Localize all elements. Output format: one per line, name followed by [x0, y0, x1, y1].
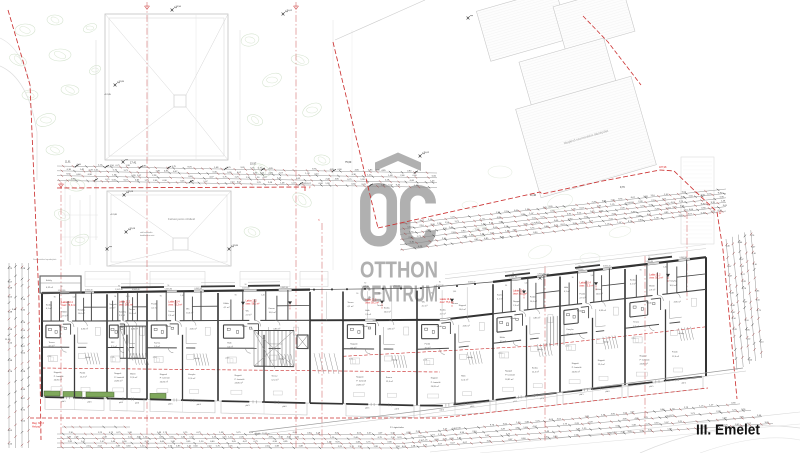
svg-text:Lakás 11.2: Lakás 11.2 — [365, 300, 377, 302]
svg-text:1,50: 1,50 — [732, 318, 737, 320]
svg-text:0,90/2,40: 0,90/2,40 — [85, 289, 93, 291]
svg-text:Konyha: Konyha — [188, 374, 196, 376]
svg-text:2,28: 2,28 — [68, 441, 73, 443]
svg-text:0,90: 0,90 — [720, 197, 725, 199]
svg-text:12,4 m²: 12,4 m² — [672, 355, 679, 358]
svg-text:össz: 75,3 m²: össz: 75,3 m² — [168, 303, 182, 306]
svg-text:4,85: 4,85 — [176, 446, 181, 448]
svg-text:4,1 m²: 4,1 m² — [151, 306, 157, 309]
svg-text:3,05: 3,05 — [723, 205, 728, 207]
svg-text:pld 5: pld 5 — [62, 401, 66, 403]
svg-text:1,50/1,80: 1,50/1,80 — [361, 286, 369, 288]
svg-text:90: 90 — [54, 297, 56, 299]
svg-text:+12,09: +12,09 — [126, 191, 134, 193]
svg-text:5,75: 5,75 — [223, 177, 228, 179]
svg-text:Nappali: Nappali — [431, 378, 439, 380]
svg-text:P: laminált: P: laminált — [114, 376, 124, 379]
svg-text:Fürdő: Fürdő — [672, 351, 678, 354]
svg-text:3,05: 3,05 — [296, 178, 301, 180]
svg-text:24,85 m²: 24,85 m² — [572, 370, 581, 373]
svg-text:Fürdő: Fürdő — [80, 372, 86, 375]
svg-text:Fürdő: Fürdő — [437, 325, 443, 328]
svg-text:erkély: erkély — [603, 341, 610, 344]
svg-text:2,9 m²: 2,9 m² — [168, 314, 174, 317]
svg-text:Előtér: Előtér — [649, 284, 655, 287]
svg-text:Nappali: Nappali — [459, 305, 467, 307]
svg-text:0,90: 0,90 — [388, 441, 393, 443]
svg-text:0,90/2,40: 0,90/2,40 — [468, 281, 476, 283]
svg-text:össz: 75,3 m²: össz: 75,3 m² — [580, 285, 594, 288]
svg-text:1,38: 1,38 — [275, 446, 280, 448]
svg-text:12,4 m²: 12,4 m² — [80, 375, 87, 378]
svg-text:Lakás 10.4: Lakás 10.4 — [62, 302, 74, 304]
svg-text:P: laminált: P: laminált — [640, 359, 650, 362]
svg-text:Szomszédos kapubejtáró: Szomszédos kapubejtáró — [33, 258, 57, 261]
svg-text:90: 90 — [167, 285, 169, 287]
svg-text:2,28: 2,28 — [21, 268, 26, 270]
svg-text:2,28: 2,28 — [326, 178, 331, 180]
svg-text:Fürdő: Fürdő — [362, 325, 368, 328]
svg-text:10,6 m²: 10,6 m² — [129, 312, 136, 315]
svg-text:+12,85: +12,85 — [117, 81, 125, 83]
svg-text:P: laminált: P: laminált — [572, 366, 582, 369]
svg-text:10,6 m²: 10,6 m² — [384, 311, 391, 314]
svg-text:24,85 m²: 24,85 m² — [431, 385, 440, 388]
svg-text:Előtér: Előtér — [500, 336, 506, 339]
svg-text:17,41: 17,41 — [130, 162, 137, 165]
svg-text:2,46: 2,46 — [449, 227, 454, 229]
svg-text:0,90: 0,90 — [279, 437, 284, 439]
svg-text:pld 6: pld 6 — [540, 398, 544, 400]
svg-text:Fürdő: Fürdő — [580, 292, 586, 295]
svg-text:1,73: 1,73 — [189, 437, 194, 439]
svg-text:1,73: 1,73 — [417, 236, 422, 238]
svg-text:1,25: 1,25 — [605, 224, 610, 226]
svg-text:1,38: 1,38 — [8, 360, 13, 362]
svg-text:5,75: 5,75 — [216, 446, 221, 448]
svg-text:0,60: 0,60 — [76, 174, 81, 176]
svg-text:3,5 m²: 3,5 m² — [154, 345, 160, 348]
svg-text:10,6 m²: 10,6 m² — [269, 311, 276, 314]
svg-text:4,1 m²: 4,1 m² — [109, 307, 115, 310]
svg-text:10,6 m²: 10,6 m² — [670, 284, 677, 287]
svg-text:4,07: 4,07 — [8, 281, 13, 283]
svg-text:10,6 m²: 10,6 m² — [78, 312, 85, 315]
svg-text:0,30: 0,30 — [213, 172, 218, 174]
svg-text:erkély: erkély — [537, 348, 544, 351]
svg-text:6,07: 6,07 — [388, 184, 393, 186]
svg-text:1,07: 1,07 — [728, 266, 733, 268]
svg-text:+14,50: +14,50 — [174, 6, 182, 8]
svg-text:1,48: 1,48 — [280, 182, 285, 184]
svg-text:24,85 m²: 24,85 m² — [356, 384, 365, 387]
svg-text:Háló: Háló — [227, 343, 232, 345]
svg-text:0,60: 0,60 — [738, 242, 743, 244]
svg-text:pld 5: pld 5 — [365, 408, 369, 410]
svg-text:4,85 m²: 4,85 m² — [674, 301, 681, 304]
svg-text:1,48: 1,48 — [730, 293, 735, 295]
svg-text:4,85: 4,85 — [164, 171, 169, 173]
svg-text:Lakás 11.2: Lakás 11.2 — [246, 301, 258, 303]
svg-text:1,50/1,80: 1,50/1,80 — [165, 288, 173, 290]
svg-text:4,1 m²: 4,1 m² — [46, 307, 52, 310]
svg-text:1,25: 1,25 — [98, 432, 103, 434]
svg-text:1,48: 1,48 — [388, 175, 393, 177]
svg-text:1,10: 1,10 — [8, 444, 13, 446]
svg-text:6,07: 6,07 — [124, 180, 129, 182]
svg-text:4,85: 4,85 — [381, 170, 386, 172]
svg-text:1,07: 1,07 — [740, 266, 745, 268]
svg-text:Nappali: Nappali — [572, 363, 580, 365]
svg-text:2,28: 2,28 — [631, 211, 636, 213]
svg-text:Nappali: Nappali — [350, 343, 358, 345]
svg-text:24,85 m²: 24,85 m² — [235, 382, 244, 385]
svg-text:0,90: 0,90 — [273, 441, 278, 443]
svg-text:Szoba: Szoba — [46, 304, 53, 306]
svg-text:Konyha: Konyha — [567, 329, 575, 331]
svg-text:90: 90 — [356, 293, 358, 295]
svg-text:+15,02: +15,02 — [422, 152, 430, 154]
svg-text:+12,09: +12,09 — [128, 228, 136, 230]
svg-text:3,5 m²: 3,5 m² — [500, 340, 506, 343]
svg-text:0,30: 0,30 — [67, 169, 72, 171]
svg-text:0,60: 0,60 — [194, 446, 199, 448]
svg-text:0,30: 0,30 — [163, 180, 168, 182]
svg-text:0,75: 0,75 — [8, 268, 13, 270]
svg-text:4,85: 4,85 — [746, 330, 751, 332]
svg-text:P: laminált: P: laminált — [160, 377, 170, 380]
svg-text:erkély: erkély — [85, 356, 92, 359]
svg-text:Lakás 11.2: Lakás 11.2 — [119, 302, 131, 304]
svg-text:1,48: 1,48 — [8, 288, 13, 290]
svg-text:Lakás 10.4: Lakás 10.4 — [580, 283, 592, 285]
svg-text:0,90/2,40: 0,90/2,40 — [280, 287, 288, 289]
svg-text:1,48: 1,48 — [8, 312, 13, 314]
svg-text:Nappali: Nappali — [160, 374, 168, 376]
svg-text:Nappali: Nappali — [114, 373, 122, 375]
svg-text:erkély: erkély — [467, 356, 474, 359]
svg-text:10,6 m²: 10,6 m² — [530, 300, 537, 303]
svg-text:1,73: 1,73 — [480, 219, 485, 221]
svg-text:P: laminált: P: laminált — [431, 381, 441, 384]
svg-text:2,10: 2,10 — [69, 432, 74, 434]
svg-text:1,50: 1,50 — [21, 330, 26, 332]
svg-text:Fürdő: Fürdő — [242, 325, 248, 328]
svg-text:1,50: 1,50 — [21, 352, 26, 354]
svg-text:90: 90 — [572, 277, 574, 279]
svg-text:pld 6: pld 6 — [682, 382, 686, 384]
svg-text:P: Légtechnika: P: Légtechnika — [390, 426, 405, 429]
svg-text:0,60: 0,60 — [210, 441, 215, 443]
svg-text:lombkorona szint: lombkorona szint — [140, 234, 155, 237]
svg-text:+12,09: +12,09 — [110, 214, 118, 216]
svg-text:90: 90 — [245, 284, 247, 286]
svg-text:1,40: 1,40 — [126, 296, 130, 298]
svg-text:1,40: 1,40 — [73, 296, 77, 298]
svg-text:2,28: 2,28 — [742, 281, 747, 283]
svg-text:4,85 m²: 4,85 m² — [463, 325, 470, 328]
svg-text:1,50/1,80: 1,50/1,80 — [646, 261, 654, 263]
svg-text:1,38: 1,38 — [499, 222, 504, 224]
svg-text:9,76: 9,76 — [66, 174, 71, 176]
svg-text:1,40: 1,40 — [261, 294, 265, 296]
svg-text:0,75: 0,75 — [222, 437, 227, 439]
svg-text:0,90: 0,90 — [21, 389, 26, 391]
svg-text:2,16: 2,16 — [225, 358, 230, 360]
svg-text:4,85 m²: 4,85 m² — [387, 327, 394, 330]
svg-text:0,30: 0,30 — [169, 437, 174, 439]
svg-text:90: 90 — [579, 265, 581, 267]
svg-text:3,05: 3,05 — [8, 430, 13, 432]
svg-text:3,5 m²: 3,5 m² — [633, 325, 639, 328]
svg-text:III. Emelet: III. Emelet — [696, 423, 760, 439]
svg-text:Fürdő: Fürdő — [530, 296, 536, 299]
svg-text:4,85: 4,85 — [269, 168, 274, 170]
svg-text:1,40: 1,40 — [591, 275, 595, 277]
svg-text:90: 90 — [431, 292, 433, 294]
svg-text:11,46: 11,46 — [5, 339, 11, 341]
svg-text:4,07: 4,07 — [731, 312, 736, 314]
svg-text:4,07: 4,07 — [367, 432, 372, 434]
svg-text:Kamra: Kamra — [269, 307, 276, 310]
svg-text:2,46: 2,46 — [354, 437, 359, 439]
svg-text:Háló: Háló — [365, 310, 370, 312]
svg-text:6,07: 6,07 — [21, 346, 26, 348]
svg-text:90: 90 — [114, 296, 116, 298]
svg-text:WC: WC — [246, 311, 250, 313]
svg-text:0,75: 0,75 — [347, 179, 352, 181]
svg-text:90: 90 — [640, 269, 642, 271]
svg-text:2,10: 2,10 — [98, 165, 103, 167]
svg-text:3,5 m²: 3,5 m² — [227, 346, 233, 349]
svg-text:90: 90 — [364, 282, 366, 284]
svg-text:Lakás 10.4: Lakás 10.4 — [440, 299, 452, 301]
svg-text:2,16: 2,16 — [498, 353, 503, 355]
svg-text:3,5 m²: 3,5 m² — [111, 345, 117, 348]
svg-text:0,60: 0,60 — [410, 180, 415, 182]
svg-text:pld 6: pld 6 — [606, 391, 610, 393]
svg-text:Szoba: Szoba — [440, 309, 447, 311]
svg-text:6,07: 6,07 — [173, 171, 178, 173]
svg-text:Előtér: Előtér — [62, 311, 68, 314]
svg-text:3,05: 3,05 — [679, 215, 684, 217]
svg-text:0,75: 0,75 — [21, 409, 26, 411]
svg-text:össz: 58,1 m²: össz: 58,1 m² — [365, 302, 379, 305]
svg-text:4,85: 4,85 — [283, 441, 288, 443]
svg-text:WC: WC — [422, 301, 426, 303]
svg-text:90: 90 — [512, 273, 514, 275]
svg-text:0,60: 0,60 — [554, 220, 559, 222]
svg-text:0,90/2,40: 0,90/2,40 — [680, 257, 688, 259]
svg-text:3,05: 3,05 — [180, 181, 185, 183]
svg-text:9,76: 9,76 — [620, 186, 625, 189]
svg-text:1,73: 1,73 — [757, 310, 762, 312]
svg-text:3,05: 3,05 — [232, 441, 237, 443]
svg-text:2,10: 2,10 — [314, 173, 319, 175]
svg-text:0,75: 0,75 — [116, 432, 121, 434]
svg-text:2,10: 2,10 — [94, 169, 99, 171]
svg-text:2,28: 2,28 — [655, 209, 660, 211]
svg-text:9,76: 9,76 — [397, 437, 402, 439]
svg-text:1,07: 1,07 — [617, 222, 622, 224]
svg-text:0,90: 0,90 — [407, 170, 412, 172]
svg-text:9,76: 9,76 — [750, 235, 755, 237]
svg-text:össz: 58,1 m²: össz: 58,1 m² — [246, 303, 260, 306]
svg-text:OTTHON: OTTHON — [360, 257, 438, 283]
svg-text:1,10: 1,10 — [746, 338, 751, 340]
svg-text:Nappali: Nappali — [513, 301, 521, 303]
svg-text:1,25: 1,25 — [257, 182, 262, 184]
svg-text:1,40: 1,40 — [663, 267, 667, 269]
svg-text:4,1 m²: 4,1 m² — [422, 304, 428, 307]
svg-text:4,1 m²: 4,1 m² — [224, 306, 230, 309]
svg-text:4,07: 4,07 — [21, 338, 26, 340]
svg-text:2,46: 2,46 — [153, 180, 158, 182]
svg-text:1,48: 1,48 — [80, 169, 85, 171]
svg-text:2,9 m²: 2,9 m² — [119, 314, 125, 317]
svg-text:Konyha: Konyha — [119, 311, 127, 313]
svg-text:1,07: 1,07 — [143, 437, 148, 439]
svg-text:90: 90 — [160, 295, 162, 297]
svg-text:Szoba: Szoba — [630, 279, 637, 281]
svg-text:zöld szigetelés: zöld szigetelés — [140, 231, 152, 234]
svg-text:3,5 m²: 3,5 m² — [567, 332, 573, 335]
svg-text:2,46: 2,46 — [212, 437, 217, 439]
svg-text:1,10: 1,10 — [664, 194, 669, 196]
svg-text:3,5 m²: 3,5 m² — [49, 345, 55, 348]
svg-text:4,1 m²: 4,1 m² — [564, 290, 570, 293]
svg-text:1,48: 1,48 — [111, 441, 116, 443]
svg-text:pld 6: pld 6 — [395, 408, 399, 410]
svg-text:4,85: 4,85 — [355, 169, 360, 171]
svg-text:pld 5: pld 5 — [246, 405, 250, 407]
svg-text:1,50/1,80: 1,50/1,80 — [242, 287, 250, 289]
svg-text:+12,85: +12,85 — [104, 94, 112, 96]
svg-text:2,46: 2,46 — [400, 175, 405, 177]
svg-text:1,50/1,80: 1,50/1,80 — [576, 269, 584, 271]
svg-text:2,10: 2,10 — [748, 359, 753, 361]
svg-text:2,10: 2,10 — [609, 219, 614, 221]
svg-text:Erkély: Erkély — [46, 279, 53, 282]
svg-text:2,9 m²: 2,9 m² — [246, 314, 252, 317]
svg-text:2,9 m²: 2,9 m² — [513, 304, 519, 307]
svg-text:WC: WC — [111, 342, 115, 344]
svg-text:1,48: 1,48 — [327, 441, 332, 443]
svg-text:2,9 m²: 2,9 m² — [62, 314, 68, 317]
svg-text:4,85: 4,85 — [755, 291, 760, 293]
svg-text:12,4 m²: 12,4 m² — [271, 378, 278, 381]
svg-text:0,60: 0,60 — [432, 176, 437, 178]
svg-text:0,75: 0,75 — [105, 179, 110, 181]
svg-text:össz: 58,1 m²: össz: 58,1 m² — [513, 292, 527, 295]
svg-text:0,75: 0,75 — [168, 446, 173, 448]
svg-text:9,76: 9,76 — [701, 203, 706, 205]
svg-text:90: 90 — [648, 257, 650, 259]
svg-text:Lakás 11.2: Lakás 11.2 — [649, 275, 661, 277]
svg-text:Fürdő: Fürdő — [59, 325, 65, 328]
svg-text:4,85: 4,85 — [368, 170, 373, 172]
svg-text:12,4 m²: 12,4 m² — [386, 380, 393, 383]
svg-text:1,50/1,80: 1,50/1,80 — [58, 290, 66, 292]
svg-text:1,40: 1,40 — [180, 295, 184, 297]
svg-text:24,85 m²: 24,85 m² — [54, 379, 63, 382]
svg-text:P: laminált: P: laminált — [356, 380, 366, 383]
svg-text:Konyha: Konyha — [670, 281, 678, 283]
svg-text:0,90/2,40: 0,90/2,40 — [393, 286, 401, 288]
svg-text:1,50/1,80: 1,50/1,80 — [115, 289, 123, 291]
svg-text:pld 6: pld 6 — [282, 406, 286, 408]
svg-text:Fürdő: Fürdő — [510, 317, 516, 320]
svg-text:Helyrajz: Helyrajz — [32, 426, 41, 429]
svg-text:15,97: 15,97 — [250, 163, 257, 166]
svg-text:Nappali: Nappali — [640, 355, 648, 357]
svg-text:4,1 m²: 4,1 m² — [347, 305, 353, 308]
svg-text:1,48: 1,48 — [356, 441, 361, 443]
svg-text:2,28: 2,28 — [21, 371, 26, 373]
svg-text:5,75: 5,75 — [249, 432, 254, 434]
svg-text:Terasz: Terasz — [49, 341, 55, 344]
svg-text:90: 90 — [118, 285, 120, 287]
svg-text:4,07: 4,07 — [751, 247, 756, 249]
svg-text:4,85 m²: 4,85 m² — [273, 327, 280, 330]
svg-text:2,9 m²: 2,9 m² — [440, 313, 446, 316]
svg-text:erkély: erkély — [679, 332, 686, 335]
svg-text:4,85: 4,85 — [269, 437, 274, 439]
svg-text:Kamra: Kamra — [497, 294, 504, 297]
svg-text:9,76: 9,76 — [8, 371, 13, 373]
svg-text:12,4 m²: 12,4 m² — [461, 379, 468, 382]
svg-text:Fürdő: Fürdő — [646, 301, 652, 304]
svg-text:24,85 m²: 24,85 m² — [160, 380, 169, 383]
svg-text:Terasz: Terasz — [168, 310, 174, 313]
svg-text:9,76: 9,76 — [718, 193, 723, 195]
svg-text:12,4 m²: 12,4 m² — [532, 371, 539, 374]
svg-text:2,46: 2,46 — [726, 245, 731, 247]
svg-text:Fürdő: Fürdő — [577, 309, 583, 312]
svg-text:Fürdő: Fürdő — [151, 303, 157, 306]
svg-text:pld 6: pld 6 — [88, 401, 92, 403]
svg-text:4,1 m²: 4,1 m² — [497, 298, 503, 301]
svg-text:6,07: 6,07 — [741, 274, 746, 276]
svg-text:0,60: 0,60 — [112, 179, 117, 181]
svg-text:90: 90 — [439, 281, 441, 283]
svg-text:össz: 58,1 m²: össz: 58,1 m² — [649, 277, 663, 280]
svg-text:3,5 m²: 3,5 m² — [425, 347, 431, 350]
svg-text:Kamra: Kamra — [386, 376, 393, 379]
svg-text:24,85 m²: 24,85 m² — [114, 380, 123, 383]
svg-text:6,07: 6,07 — [728, 276, 733, 278]
svg-text:1,48: 1,48 — [214, 167, 219, 169]
svg-text:0,90/2,40: 0,90/2,40 — [132, 289, 140, 291]
svg-text:Szoba: Szoba — [384, 307, 391, 309]
svg-text:Nappali: Nappali — [598, 360, 606, 362]
svg-text:Fürdő: Fürdő — [425, 343, 431, 346]
svg-text:9,76: 9,76 — [336, 441, 341, 443]
svg-text:9,76: 9,76 — [554, 225, 559, 227]
svg-text:2,10: 2,10 — [745, 320, 750, 322]
svg-text:4,07: 4,07 — [209, 176, 214, 178]
svg-text:össz: 58,1 m²: össz: 58,1 m² — [119, 304, 133, 307]
svg-text:9,76: 9,76 — [188, 166, 193, 168]
svg-text:0,30: 0,30 — [131, 175, 136, 177]
svg-text:F: F — [309, 186, 311, 190]
svg-text:1,48: 1,48 — [299, 446, 304, 448]
svg-text:1,50: 1,50 — [756, 300, 761, 302]
svg-text:11,46: 11,46 — [530, 194, 537, 197]
svg-text:Nappali: Nappali — [505, 371, 513, 373]
svg-text:pld 6: pld 6 — [197, 404, 201, 406]
svg-text:2,46: 2,46 — [268, 182, 273, 184]
